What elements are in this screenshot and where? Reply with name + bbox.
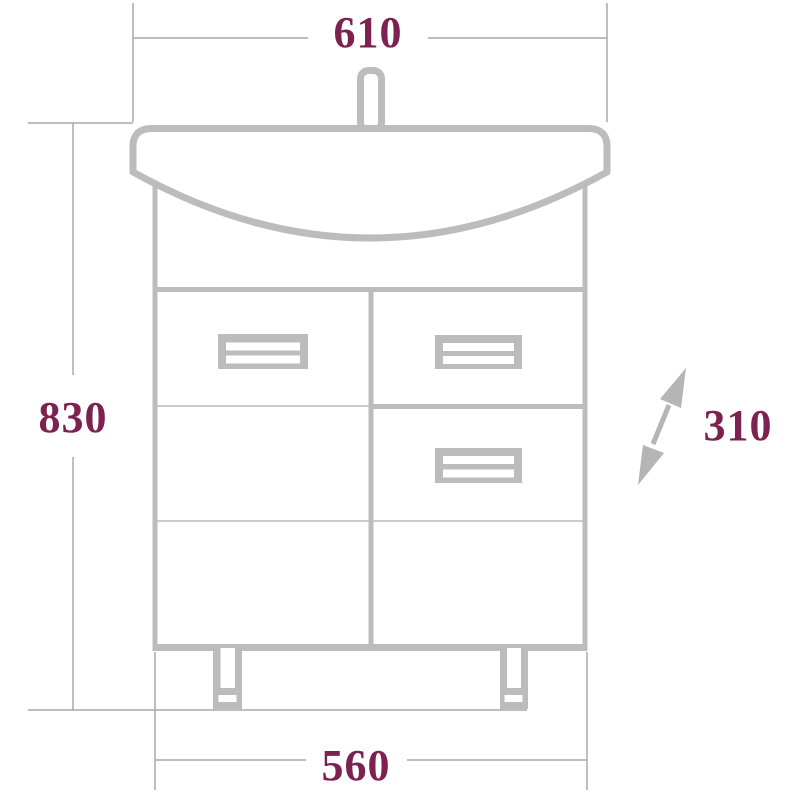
cabinet-legs — [213, 648, 528, 709]
sink-basin — [133, 129, 607, 239]
faucet — [361, 71, 382, 131]
drawer-handle-top-right — [435, 335, 522, 369]
cabinet-body — [153, 178, 588, 650]
depth-arrow-shaft — [653, 405, 669, 444]
leg-left — [213, 648, 242, 709]
depth-arrow-head-up — [660, 368, 686, 408]
depth-arrow-head-down — [638, 445, 664, 485]
drawer-handle-middle-right — [435, 448, 522, 483]
drawer-handle-top-left — [218, 334, 308, 369]
dimension-label-right-depth: 310 — [678, 404, 798, 448]
dimension-label-bottom-width: 560 — [281, 744, 431, 788]
dimension-label-left-height: 830 — [13, 396, 133, 440]
dimension-label-top-width: 610 — [293, 11, 443, 55]
vanity-dimension-drawing: 610 830 310 560 — [0, 0, 800, 800]
leg-right — [500, 648, 528, 709]
